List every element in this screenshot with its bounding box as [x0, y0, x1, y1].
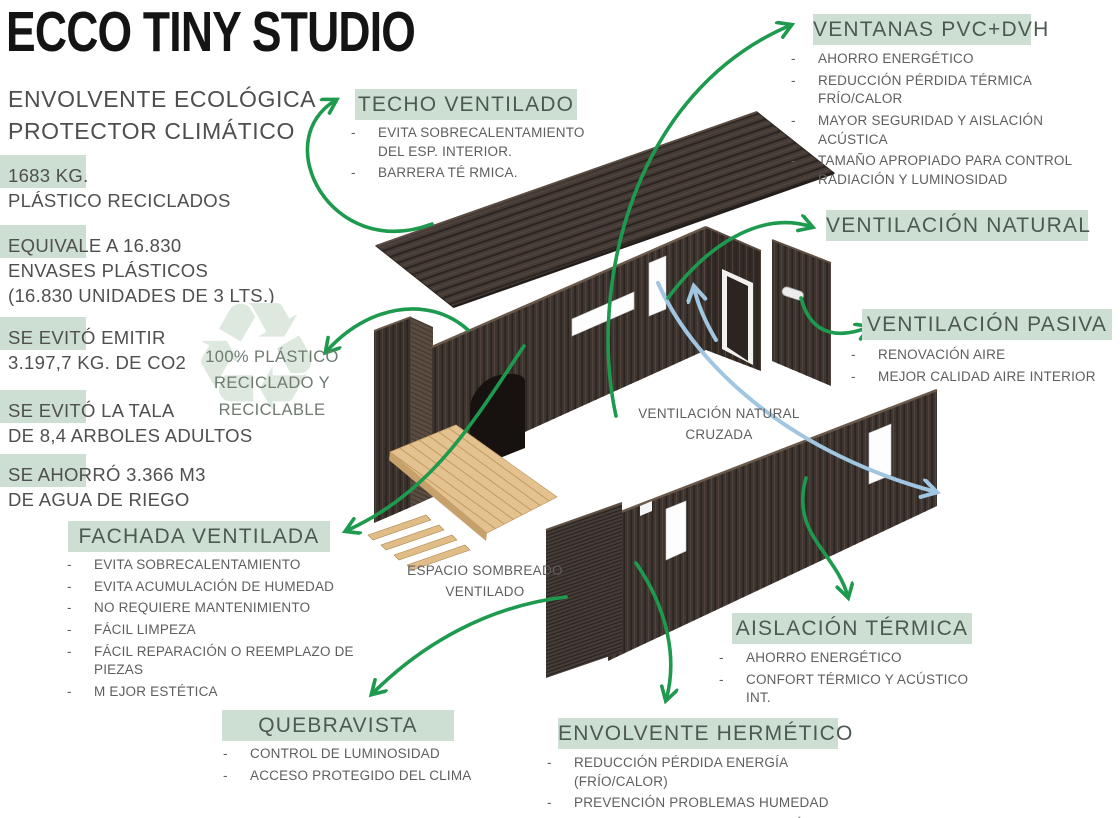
- infographic-canvas: ECCO TINY STUDIO ENVOLVENTE ECOLÓGICA PR…: [0, 0, 1120, 818]
- stat-highlight: 1683 KG.: [8, 163, 231, 188]
- note-ventilacion-cruzada: VENTILACIÓN NATURAL CRUZADA: [638, 404, 800, 446]
- recycle-line-3: RECICLABLE: [182, 397, 362, 423]
- bullet: EVITA ACUMULACIÓN DE HUMEDAD: [64, 578, 374, 597]
- arrow-quebravista: [372, 597, 566, 694]
- callout-envolvente-title: ENVOLVENTE HERMÉTICO: [558, 718, 838, 749]
- stat-line: 3.197,7 KG. DE CO2: [8, 350, 186, 375]
- stat-agua: SE AHORRÓ 3.366 M3 DE AGUA DE RIEGO: [8, 462, 206, 512]
- bullet: CONFORT TÉRMICO Y ACÚSTICO INT.: [716, 671, 996, 708]
- callout-ventanas-bullets: AHORRO ENERGÉTICO REDUCCIÓN PÉRDIDA TÉRM…: [788, 50, 1073, 192]
- stat-highlight: SE EVITÓ EMITIR: [8, 325, 186, 350]
- page-subtitle: ENVOLVENTE ECOLÓGICA PROTECTOR CLIMÁTICO: [8, 84, 316, 147]
- bullet: EVITA SOBRECALENTAMIENTO: [64, 556, 374, 575]
- bullet: BARRERA TÉ RMICA.: [348, 164, 604, 183]
- stat-co2: SE EVITÓ EMITIR 3.197,7 KG. DE CO2: [8, 325, 186, 375]
- stat-highlight: EQUIVALE A 16.830: [8, 233, 275, 258]
- recycle-line-1: 100% PLÁSTICO: [182, 344, 362, 370]
- callout-techo-title: TECHO VENTILADO: [355, 89, 577, 120]
- callout-vent-pasiva-bullets: RENOVACIÓN AIRE MEJOR CALIDAD AIRE INTER…: [848, 346, 1110, 389]
- bullet: FÁCIL LIMPEZA: [64, 621, 374, 640]
- callout-ventanas-title: VENTANAS PVC+DVH: [813, 14, 1031, 45]
- bullet: MAYOR SEGURIDAD Y AISLACIÓN ACÚSTICA: [788, 112, 1073, 149]
- bullet: CONTROL DE LUMINOSIDAD: [220, 745, 482, 764]
- callout-aislacion-bullets: AHORRO ENERGÉTICO CONFORT TÉRMICO Y ACÚS…: [716, 649, 996, 711]
- stat-highlight: SE AHORRÓ 3.366 M3: [8, 462, 206, 487]
- bullet: NO REQUIERE MANTENIMIENTO: [64, 599, 374, 618]
- bullet: RENOVACIÓN AIRE: [848, 346, 1110, 365]
- bullet: TAMAÑO APROPIADO PARA CONTROL RADIACIÓN …: [788, 152, 1073, 189]
- page-title: ECCO TINY STUDIO: [6, 4, 415, 61]
- bullet: PREVENCIÓN PROBLEMAS HUMEDAD: [544, 794, 864, 813]
- stat-line: PLÁSTICO RECICLADOS: [8, 188, 231, 213]
- recycle-note: 100% PLÁSTICO RECICLADO Y RECICLABLE: [182, 344, 362, 423]
- bullet: REDUCCIÓN PÉRDIDA TÉRMICA FRÍO/CALOR: [788, 72, 1073, 109]
- callout-fachada-title: FACHADA VENTILADA: [68, 521, 330, 552]
- callout-quebravista-title: QUEBRAVISTA: [222, 710, 454, 741]
- door-leaf: [727, 276, 748, 361]
- bullet: AHORRO ENERGÉTICO: [788, 50, 1073, 69]
- front-wall-window-left: [666, 501, 686, 560]
- callout-envolvente-bullets: REDUCCIÓN PÉRDIDA ENERGÍA (FRÍO/CALOR) P…: [544, 754, 864, 818]
- stat-line: DE AGUA DE RIEGO: [8, 487, 206, 512]
- entry-portal: [374, 317, 433, 523]
- callout-quebravista-bullets: CONTROL DE LUMINOSIDAD ACCESO PROTEGIDO …: [220, 745, 482, 788]
- bullet: ACCESO PROTEGIDO DEL CLIMA: [220, 767, 482, 786]
- subtitle-line-1: ENVOLVENTE ECOLÓGICA: [8, 84, 316, 116]
- callout-aislacion-title: AISLACIÓN TÉRMICA: [732, 613, 972, 644]
- callout-vent-natural-title: VENTILACIÓN NATURAL: [826, 210, 1088, 241]
- callout-techo-bullets: EVITA SOBRECALENTAMIENTO DEL ESP. INTERI…: [348, 124, 604, 186]
- note-espacio-sombreado: ESPACIO SOMBREADO VENTILADO: [405, 561, 565, 603]
- subtitle-line-2: PROTECTOR CLIMÁTICO: [8, 116, 316, 148]
- side-wall-vent: [772, 240, 831, 386]
- stat-plastico-reciclado: 1683 KG. PLÁSTICO RECICLADOS: [8, 163, 231, 213]
- bullet: AHORRO ENERGÉTICO: [716, 649, 996, 668]
- recycle-line-2: RECICLADO Y: [182, 370, 362, 396]
- bullet: REDUCCIÓN PÉRDIDA ENERGÍA (FRÍO/CALOR): [544, 754, 864, 791]
- callout-fachada-bullets: EVITA SOBRECALENTAMIENTO EVITA ACUMULACI…: [64, 556, 374, 704]
- bullet: MEJOR CALIDAD AIRE INTERIOR: [848, 368, 1110, 387]
- bullet: M EJOR ESTÉTICA: [64, 683, 374, 702]
- bullet: EVITA SOBRECALENTAMIENTO DEL ESP. INTERI…: [348, 124, 604, 161]
- bullet: FÁCIL REPARACIÓN O REEMPLAZO DE PIEZAS: [64, 643, 374, 680]
- callout-vent-pasiva-title: VENTILACIÓN PASIVA: [862, 309, 1112, 340]
